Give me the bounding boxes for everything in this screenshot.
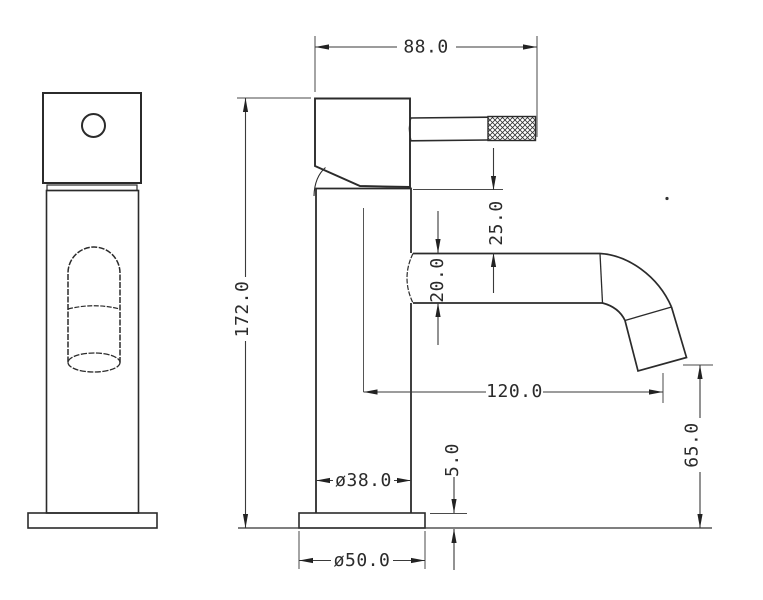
dim-label-5: 5.0 (442, 443, 463, 477)
dim-label-50: ø50.0 (334, 550, 391, 571)
front-head-outline (43, 93, 141, 183)
dimension-20: 20.0 (427, 211, 448, 345)
dimension-5: 5.0 (430, 443, 467, 570)
front-view (28, 93, 157, 528)
side-head-outline (315, 99, 410, 188)
dim-label-65: 65.0 (682, 422, 703, 467)
dimension-172: 172.0 (232, 98, 311, 528)
side-lever-knurled-grip (488, 117, 536, 141)
side-spout-tip-joint (625, 307, 672, 321)
dim-label-88: 88.0 (403, 37, 448, 58)
dim-label-20: 20.0 (427, 257, 448, 302)
side-spout-bend-joint (600, 254, 603, 304)
speck-artifact (665, 197, 668, 200)
dim-label-25: 25.0 (486, 200, 507, 245)
dimension-120: 120.0 (364, 373, 664, 403)
dimension-50: ø50.0 (299, 531, 425, 571)
dim-label-172: 172.0 (232, 281, 253, 338)
side-spout-inner-bend (603, 303, 626, 321)
front-spout-profile (68, 247, 120, 362)
dimension-65: 65.0 (682, 365, 714, 528)
front-neck-ring (47, 185, 137, 191)
dimension-38: ø38.0 (316, 470, 411, 491)
side-spout-body-junction-arc (407, 254, 413, 304)
faucet-technical-drawing: 88.0 172.0 25.0 20.0 (0, 0, 763, 600)
side-view (238, 99, 712, 529)
dim-label-120: 120.0 (486, 381, 543, 402)
front-base-plate (28, 513, 157, 528)
front-spout-inner-arc (68, 306, 120, 309)
side-spout-outer-bend (600, 254, 672, 308)
side-lever-stem (410, 117, 488, 141)
dim-label-38: ø38.0 (335, 470, 392, 491)
drawing-canvas: 88.0 172.0 25.0 20.0 (0, 0, 763, 600)
front-body-outline (47, 191, 139, 514)
side-spout-outlet (625, 307, 687, 371)
side-base-plate (299, 513, 425, 528)
front-spout-outlet-ellipse (68, 353, 120, 372)
front-indicator-circle (82, 114, 105, 137)
